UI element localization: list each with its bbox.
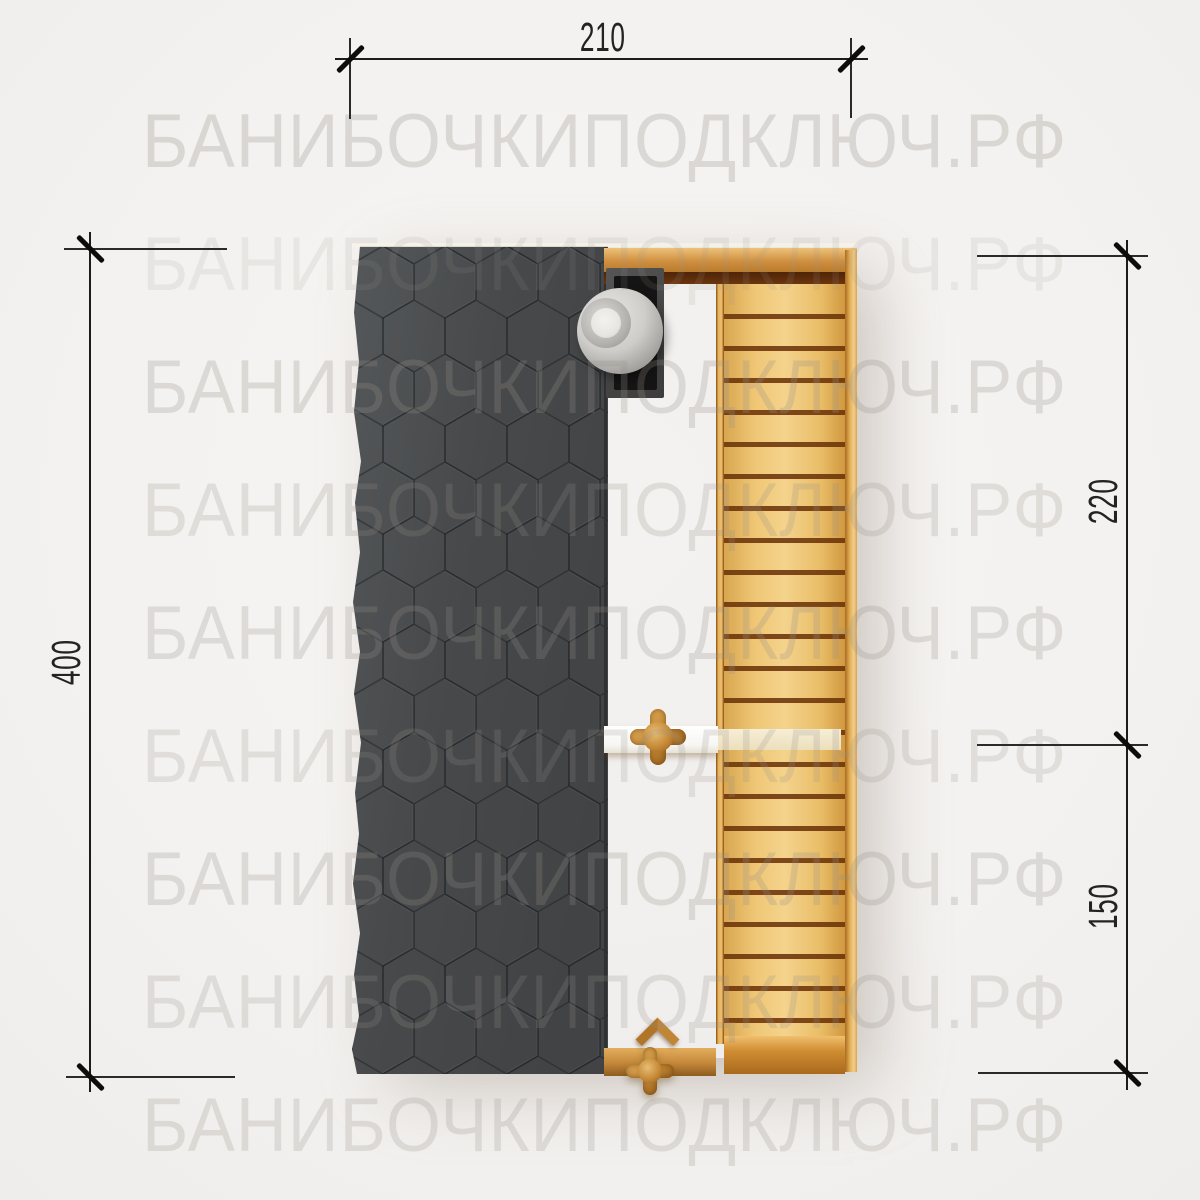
chimney-cap-top	[591, 308, 621, 338]
dim-ext-210-left	[349, 38, 351, 119]
deck-center-beam	[716, 284, 724, 1044]
hexagon-pattern	[352, 246, 608, 1074]
door-handle-knob	[630, 709, 686, 765]
watermark-row: БАНИБОЧКИПОДКЛЮЧ.РФ	[142, 104, 1067, 180]
dim-text-150: 150	[1080, 883, 1127, 929]
dim-label-400: 400	[45, 607, 87, 717]
structure-top-edge	[352, 243, 857, 247]
roof-shingles	[352, 246, 608, 1074]
dim-label-220: 220	[1082, 446, 1124, 556]
watermark-row: БАНИБОЧКИПОДКЛЮЧ.РФ	[142, 1088, 1067, 1164]
knob-core	[638, 1059, 662, 1083]
drawing-canvas: БАНИБОЧКИПОДКЛЮЧ.РФБАНИБОЧКИПОДКЛЮЧ.РФБА…	[0, 0, 1200, 1200]
dim-line-right	[1126, 240, 1128, 1090]
terrace-bottom-rail	[724, 1036, 845, 1074]
deck-right-trim	[845, 250, 857, 1072]
dim-label-210: 210	[548, 16, 658, 58]
knob-core	[643, 722, 673, 752]
sauna-door-planks	[604, 284, 716, 1048]
door-latch-knob	[626, 1047, 674, 1095]
dim-ext-210-right	[850, 38, 852, 118]
terrace-handle-bar	[718, 729, 841, 750]
dim-text-400: 400	[43, 639, 90, 685]
dim-label-150: 150	[1082, 851, 1124, 961]
dim-text-220: 220	[1080, 478, 1127, 524]
terrace-deck-planks	[724, 284, 845, 1036]
dim-text-210: 210	[580, 14, 626, 61]
